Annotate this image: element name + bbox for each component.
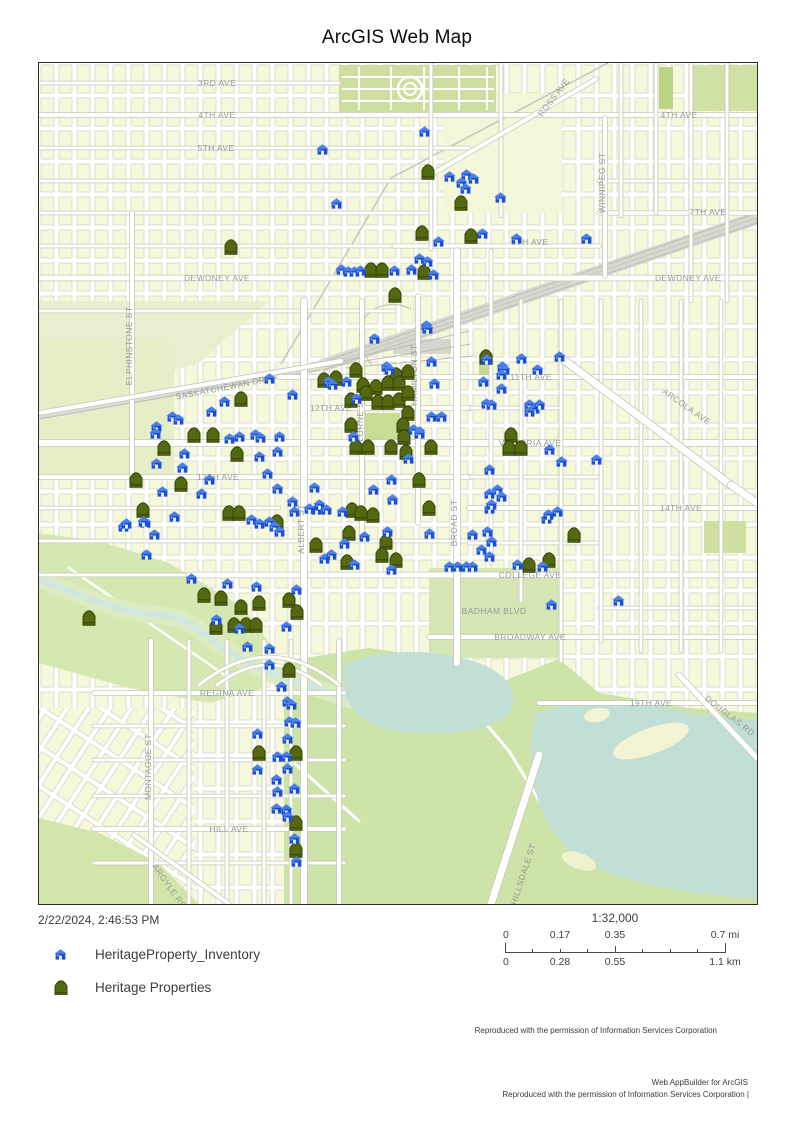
attribution-line-3: Reproduced with the permission of Inform…: [502, 1090, 749, 1099]
heritage-property-marker[interactable]: [225, 240, 237, 255]
blue-house-icon: [53, 948, 69, 961]
street-label: ELPHINSTONE ST: [124, 307, 134, 386]
heritage-property-marker[interactable]: [515, 441, 527, 456]
heritage-property-marker[interactable]: [253, 596, 265, 611]
legend-item-inventory: HeritageProperty_Inventory: [53, 944, 260, 964]
heritage-property-marker[interactable]: [416, 226, 428, 241]
street-label: MONTAGUE ST: [143, 734, 153, 800]
street-label: WINNIPEG ST: [597, 153, 607, 214]
heritage-property-marker[interactable]: [231, 447, 243, 462]
heritage-property-marker[interactable]: [345, 418, 357, 433]
street-label: 4TH AVE: [660, 110, 697, 120]
green-house-icon: [53, 980, 69, 995]
legend-item-properties: Heritage Properties: [53, 977, 260, 997]
heritage-property-marker[interactable]: [198, 588, 210, 603]
scale-mi-half: 0.35: [605, 929, 625, 941]
heritage-property-marker[interactable]: [376, 548, 388, 563]
scale-km-0: 0: [503, 956, 509, 968]
street-label: 14TH AVE: [660, 503, 702, 513]
street-label: 11TH AVE: [510, 372, 552, 382]
heritage-property-marker[interactable]: [250, 618, 262, 633]
heritage-property-marker[interactable]: [355, 506, 367, 521]
scale-mi-0: 0: [503, 929, 509, 941]
street-label: DEWDNEY AVE: [655, 273, 721, 283]
street-label: 5TH AVE: [197, 143, 234, 153]
heritage-property-marker[interactable]: [235, 600, 247, 615]
map-svg[interactable]: 3RD AVE4TH AVE5TH AVEROSS AVE4TH AVEWINN…: [39, 63, 757, 904]
scale-bar: 1:32,000 0 0.17 0.35 0.7 mi 0 0.28 0.55 …: [505, 915, 745, 969]
street-label: 19TH AVE: [630, 698, 672, 708]
heritage-property-marker[interactable]: [455, 196, 467, 211]
scale-bar-line: [505, 942, 726, 953]
heritage-property-marker[interactable]: [290, 746, 302, 761]
heritage-property-marker[interactable]: [425, 440, 437, 455]
heritage-property-marker[interactable]: [235, 392, 247, 407]
heritage-property-marker[interactable]: [465, 229, 477, 244]
heritage-property-marker[interactable]: [175, 477, 187, 492]
scale-km-full: 1.1 km: [709, 956, 741, 968]
heritage-property-marker[interactable]: [423, 501, 435, 516]
heritage-property-marker[interactable]: [360, 386, 372, 401]
legend: HeritageProperty_Inventory Heritage Prop…: [53, 944, 260, 1010]
page-title: ArcGIS Web Map: [0, 27, 794, 49]
heritage-property-marker[interactable]: [418, 265, 430, 280]
heritage-property-marker[interactable]: [350, 440, 362, 455]
heritage-property-marker[interactable]: [283, 663, 295, 678]
heritage-property-marker[interactable]: [215, 591, 227, 606]
heritage-property-marker[interactable]: [422, 165, 434, 180]
heritage-property-marker[interactable]: [503, 441, 515, 456]
heritage-property-marker[interactable]: [137, 503, 149, 518]
timestamp: 2/22/2024, 2:46:53 PM: [38, 913, 159, 927]
scale-mi-quarter: 0.17: [550, 929, 570, 941]
street-label: BROAD ST: [449, 500, 459, 547]
heritage-property-marker[interactable]: [291, 605, 303, 620]
attribution-line-2: Web AppBuilder for ArcGIS: [652, 1078, 748, 1087]
heritage-property-marker[interactable]: [382, 395, 394, 410]
heritage-property-marker[interactable]: [253, 746, 265, 761]
scale-mi-full: 0.7 mi: [711, 929, 740, 941]
legend-label: Heritage Properties: [95, 980, 211, 995]
heritage-property-marker[interactable]: [398, 430, 410, 445]
legend-label: HeritageProperty_Inventory: [95, 947, 260, 962]
heritage-property-marker[interactable]: [350, 363, 362, 378]
heritage-property-marker[interactable]: [188, 428, 200, 443]
attribution-line-1: Reproduced with the permission of Inform…: [475, 1026, 717, 1035]
heritage-property-marker[interactable]: [283, 593, 295, 608]
heritage-property-marker[interactable]: [402, 386, 414, 401]
heritage-property-marker[interactable]: [83, 611, 95, 626]
street-label: 7TH AVE: [689, 207, 726, 217]
street-label: 4TH AVE: [198, 110, 235, 120]
heritage-property-marker[interactable]: [365, 263, 377, 278]
scale-km-quarter: 0.28: [550, 956, 570, 968]
street-label: 13TH AVE: [197, 472, 239, 482]
heritage-property-marker[interactable]: [568, 528, 580, 543]
heritage-property-marker[interactable]: [130, 473, 142, 488]
heritage-property-marker[interactable]: [505, 428, 517, 443]
heritage-property-marker[interactable]: [413, 473, 425, 488]
heritage-property-marker[interactable]: [367, 508, 379, 523]
heritage-property-marker[interactable]: [290, 843, 302, 858]
map-canvas[interactable]: 3RD AVE4TH AVE5TH AVEROSS AVE4TH AVEWINN…: [38, 62, 758, 905]
heritage-property-marker[interactable]: [362, 440, 374, 455]
street-label: BROADWAY AVE: [494, 632, 566, 642]
heritage-property-marker[interactable]: [382, 376, 394, 391]
heritage-property-marker[interactable]: [389, 288, 401, 303]
heritage-property-marker[interactable]: [233, 506, 245, 521]
street-label: BADHAM BLVD: [462, 606, 527, 616]
street-label: REGINA AVE: [200, 688, 254, 698]
heritage-property-marker[interactable]: [158, 441, 170, 456]
heritage-property-marker[interactable]: [376, 263, 388, 278]
heritage-property-marker[interactable]: [380, 535, 392, 550]
heritage-property-marker[interactable]: [207, 428, 219, 443]
heritage-property-marker[interactable]: [310, 538, 322, 553]
street-label: HILL AVE: [209, 824, 248, 834]
scale-ratio: 1:32,000: [592, 911, 639, 925]
heritage-property-marker[interactable]: [523, 558, 535, 573]
heritage-property-marker[interactable]: [402, 365, 414, 380]
heritage-property-marker[interactable]: [385, 440, 397, 455]
heritage-property-marker[interactable]: [343, 526, 355, 541]
street-label: DEWDNEY AVE: [184, 273, 250, 283]
scale-km-half: 0.55: [605, 956, 625, 968]
print-page: ArcGIS Web Map: [0, 0, 794, 1123]
street-label: 3RD AVE: [198, 78, 236, 88]
